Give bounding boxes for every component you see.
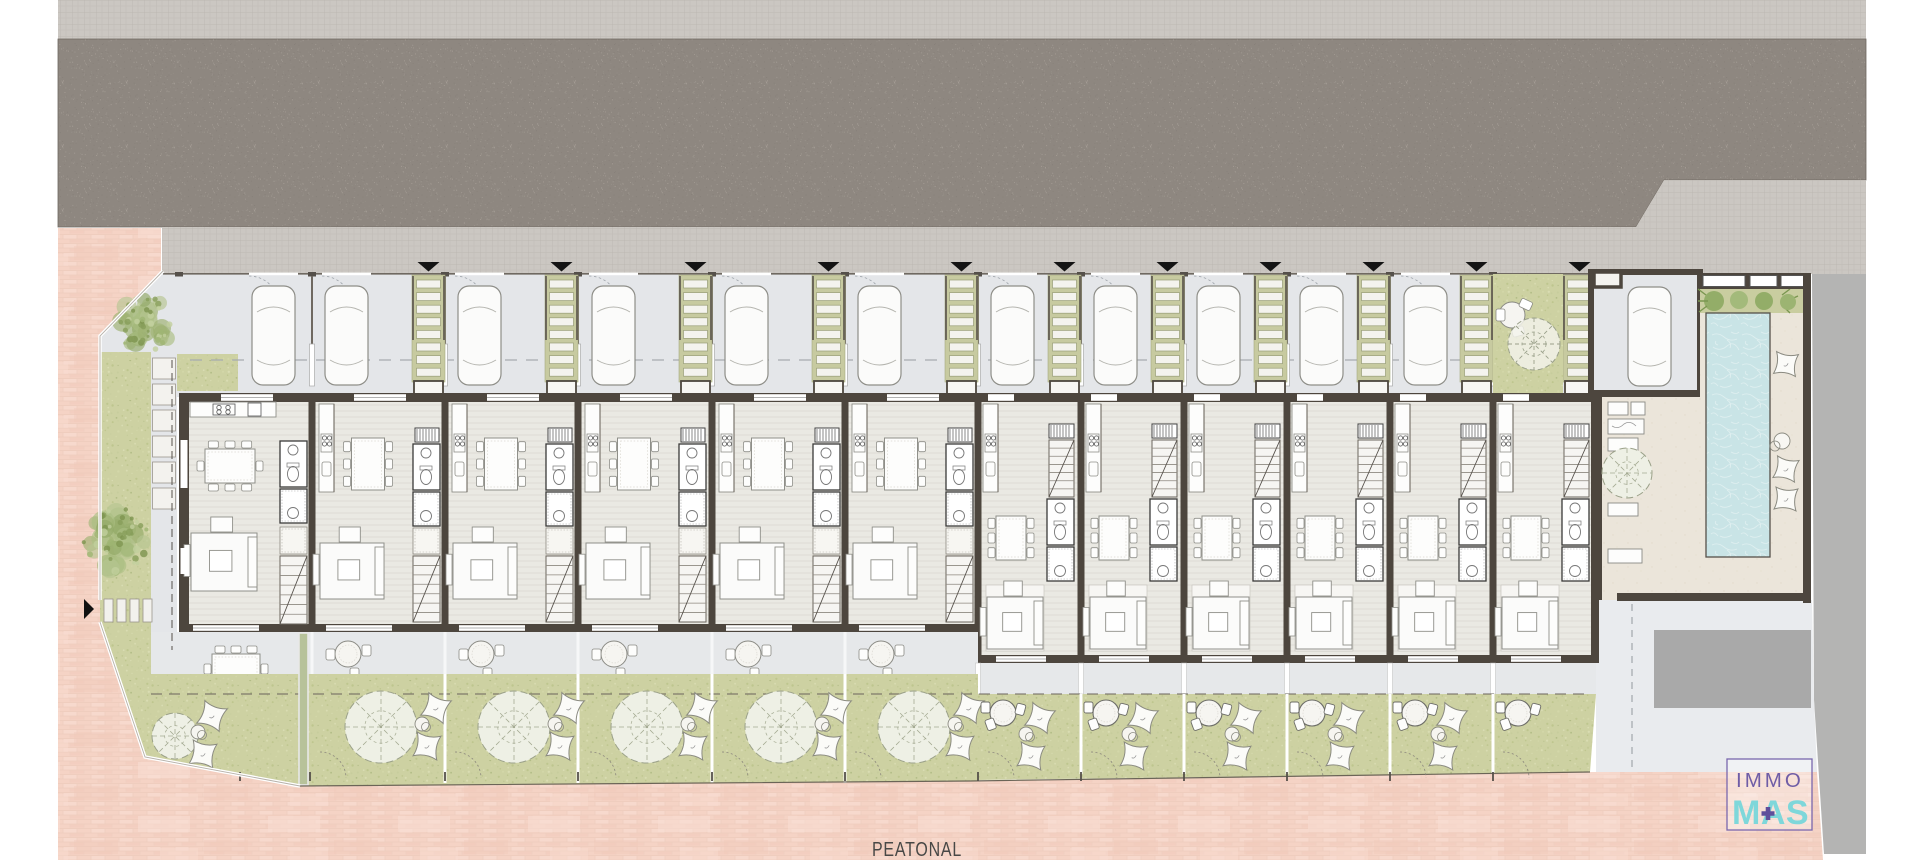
svg-text:PEATONAL: PEATONAL [872, 838, 962, 860]
svg-text:IMMO: IMMO [1736, 769, 1804, 792]
